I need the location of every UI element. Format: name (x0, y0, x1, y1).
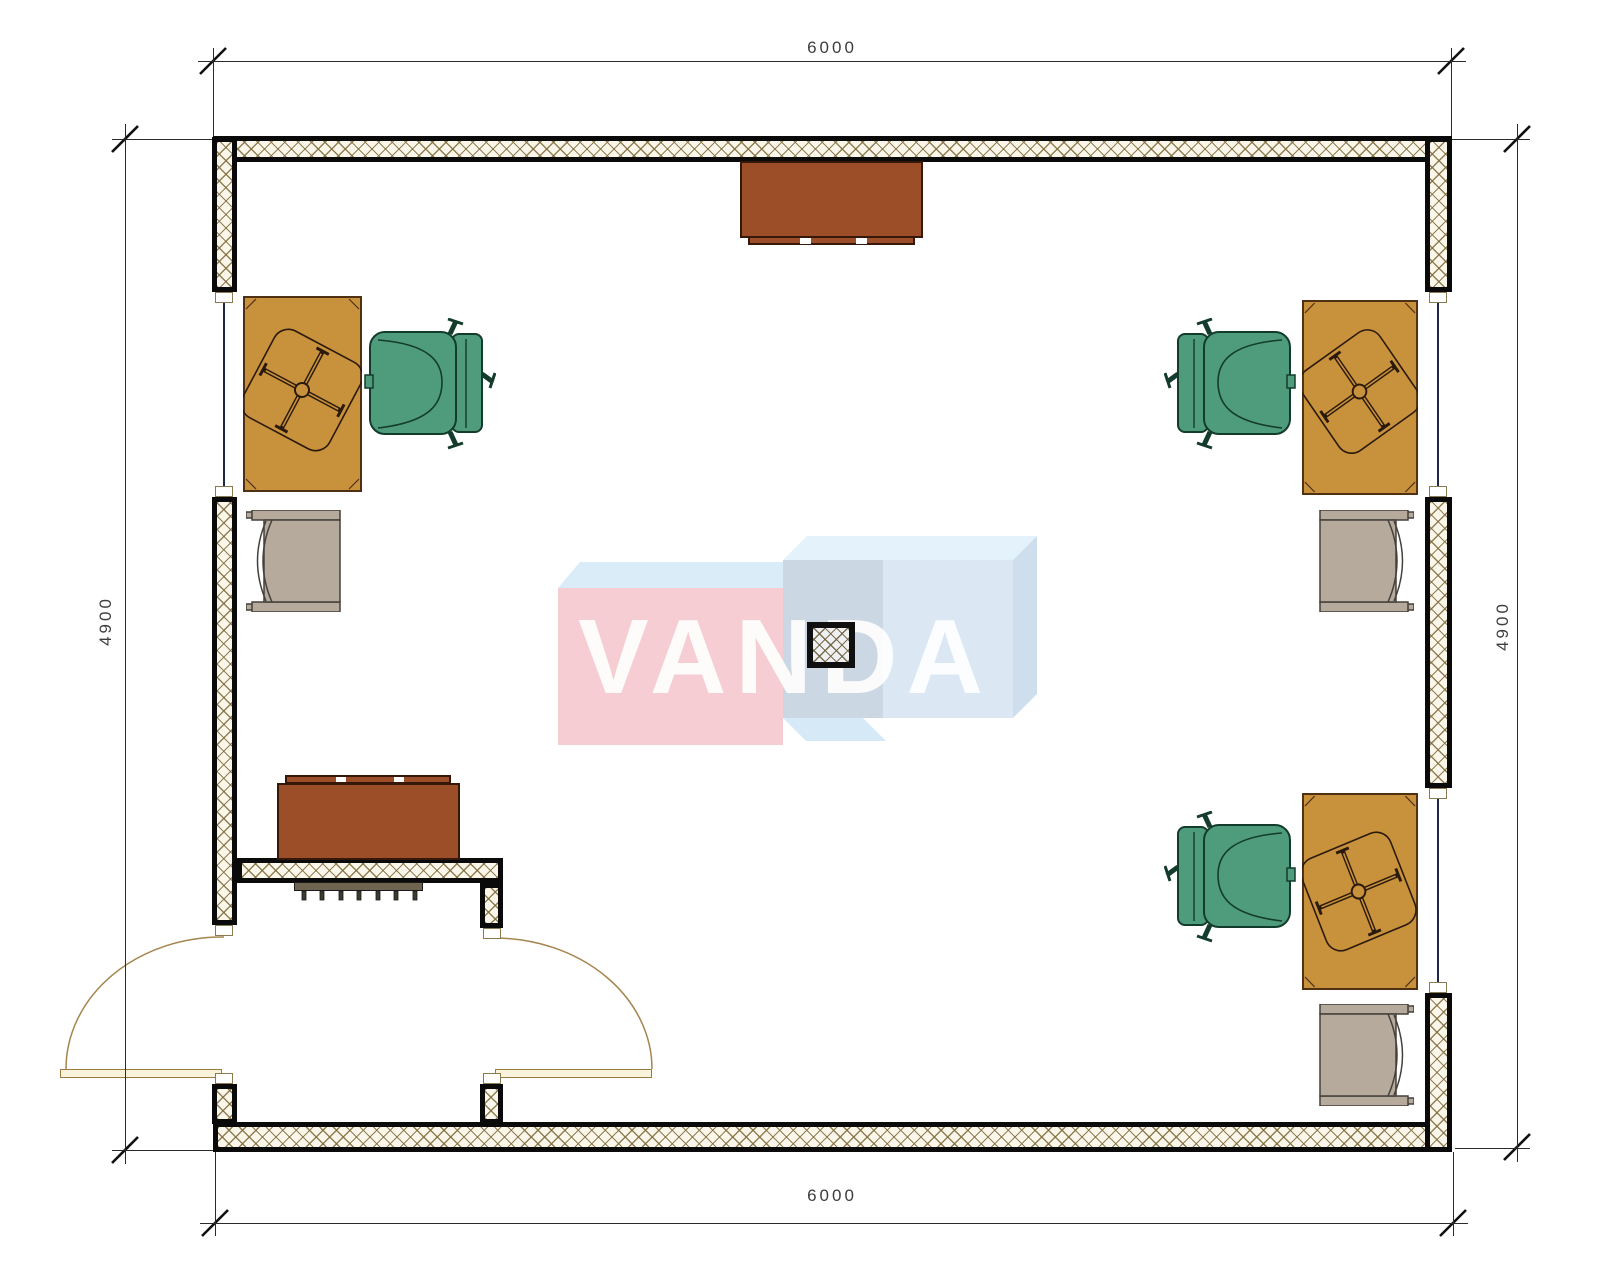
cabinet-gap (800, 238, 811, 244)
side-chair-gray-right-middle (1314, 510, 1414, 612)
desk-bottom-right (1302, 793, 1418, 990)
ext-line (215, 1152, 216, 1236)
door-swing-arcs (66, 937, 652, 1069)
jamb-marker (1429, 292, 1447, 303)
cabinet-gap (336, 777, 346, 782)
cabinet-gap (856, 238, 867, 244)
jamb-marker (215, 925, 233, 936)
jamb-marker (215, 1073, 233, 1084)
structural-column (807, 622, 855, 668)
jamb-marker (215, 292, 233, 303)
floor-plan-canvas: VANDA (0, 0, 1600, 1280)
cabinet-gap (394, 777, 404, 782)
ext-line (112, 1150, 213, 1151)
door-leaf-vestibule (495, 1069, 652, 1078)
wall-left-door-stub (212, 1084, 237, 1124)
ext-line (112, 139, 212, 140)
wall-left-upper (212, 137, 237, 292)
dim-label-left: 4900 (96, 551, 116, 691)
armchair-green-left (364, 318, 496, 450)
jamb-marker (215, 486, 233, 497)
wall-right-middle (1425, 497, 1452, 788)
dim-line-bottom (200, 1223, 1468, 1224)
wall-right-lower (1425, 993, 1452, 1152)
watermark-blue-side-face (1013, 536, 1037, 718)
jamb-marker (1429, 982, 1447, 993)
jamb-marker (483, 928, 501, 939)
wall-vestibule-stub (480, 1084, 503, 1124)
wall-right-upper (1425, 137, 1452, 292)
dim-line-right (1517, 124, 1518, 1162)
wall-top (213, 136, 1452, 162)
jamb-marker (483, 1073, 501, 1084)
dim-label-bottom: 6000 (762, 1186, 902, 1206)
ext-line (1452, 139, 1530, 140)
wall-left-middle (212, 497, 237, 925)
ext-line (1453, 1152, 1454, 1236)
dim-line-left (125, 124, 126, 1164)
desk-left (243, 296, 362, 492)
cabinet-top-plinth (748, 236, 915, 245)
wall-bottom (213, 1122, 1452, 1152)
watermark-pink-top-face (558, 562, 805, 588)
door-leaf-entrance (60, 1069, 222, 1078)
wall-vestibule (237, 858, 503, 883)
jamb-marker (1429, 486, 1447, 497)
ext-line (213, 48, 214, 136)
wall-vestibule-return (480, 883, 503, 928)
ext-line (1455, 1148, 1530, 1149)
desk-top-right (1302, 300, 1418, 495)
side-chair-gray-right-bottom (1314, 1004, 1414, 1106)
side-chair-gray-left (246, 510, 346, 612)
ext-line (1451, 48, 1452, 136)
jamb-marker (1429, 788, 1447, 799)
armchair-green-bottom-right (1164, 811, 1296, 943)
dim-label-top: 6000 (762, 38, 902, 58)
watermark-blue-top-face (783, 536, 1037, 560)
cabinet-vestibule (277, 783, 460, 860)
dim-label-right: 4900 (1493, 556, 1513, 696)
cabinet-top (740, 161, 923, 238)
watermark-text: VANDA (578, 604, 992, 710)
dim-line-top (198, 61, 1466, 62)
armchair-green-top-right (1164, 318, 1296, 450)
watermark-blue-bottom-lip (783, 718, 886, 741)
radiator (294, 882, 424, 902)
